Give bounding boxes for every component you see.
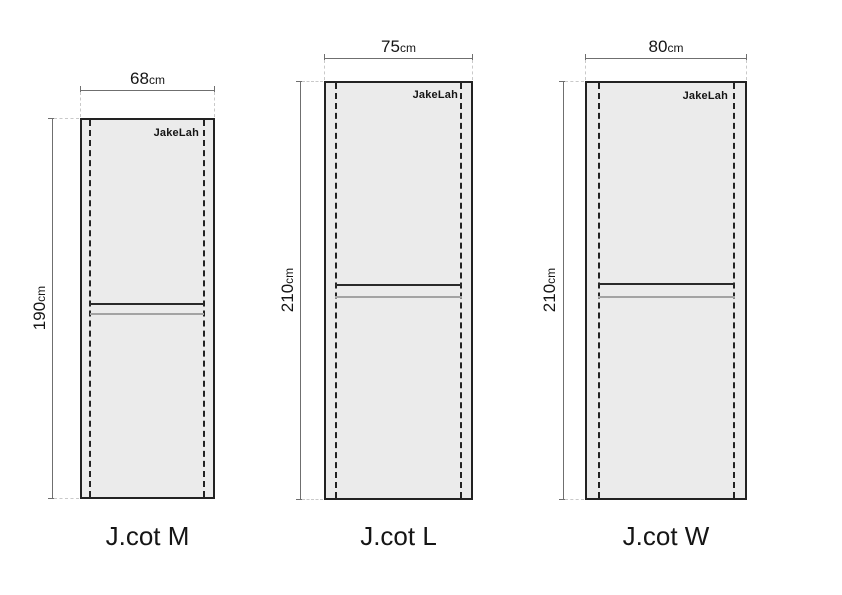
cot-w-panel: JakeLah bbox=[585, 81, 747, 500]
fold-line-left bbox=[598, 83, 600, 498]
cot-w-height-label: 210cm bbox=[540, 245, 560, 335]
cot-w-name: J.cot W bbox=[585, 520, 747, 552]
size-comparison-diagram: 68cm 190cm JakeLah J.cot M bbox=[0, 0, 842, 595]
crossbar-light bbox=[598, 296, 735, 298]
cot-w-width-unit: cm bbox=[667, 41, 683, 55]
dimension-line bbox=[585, 58, 747, 59]
cot-w-width-dimension-line bbox=[585, 54, 747, 63]
cot-w-height-dimension-line bbox=[559, 81, 568, 500]
extension-line bbox=[565, 81, 584, 82]
extension-line bbox=[565, 499, 584, 500]
extension-line bbox=[585, 60, 586, 80]
fold-line-right bbox=[733, 83, 735, 498]
cot-w-height-value: 210 bbox=[540, 284, 559, 312]
crossbar-dark bbox=[598, 283, 735, 285]
dimension-line bbox=[563, 81, 564, 500]
cot-w-group: 80cm 210cm JakeLah J.cot W bbox=[0, 0, 842, 595]
extension-line bbox=[746, 60, 747, 80]
brand-logo: JakeLah bbox=[683, 90, 728, 102]
cot-w-height-unit: cm bbox=[544, 268, 558, 284]
